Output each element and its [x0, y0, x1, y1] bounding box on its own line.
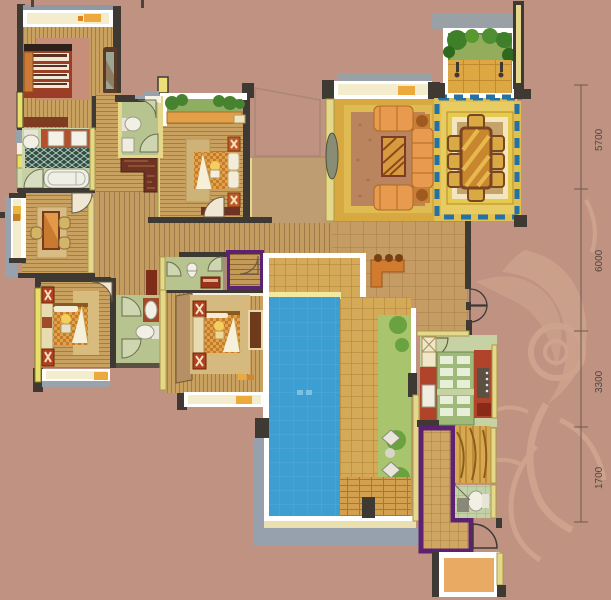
svg-text:1700: 1700	[594, 466, 605, 489]
svg-text:3300: 3300	[594, 370, 605, 393]
svg-text:5700: 5700	[594, 128, 605, 151]
svg-text:6000: 6000	[594, 249, 605, 272]
